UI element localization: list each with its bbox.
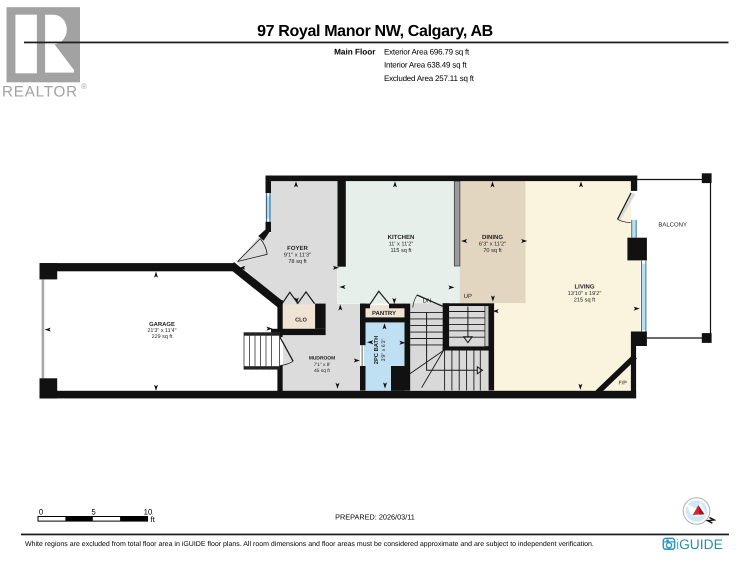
svg-text:MUDROOM: MUDROOM [309,355,335,361]
svg-text:3'9" x 6'3": 3'9" x 6'3" [381,339,387,362]
svg-text:115 sq ft: 115 sq ft [390,247,411,254]
svg-text:6'3" x 11'2": 6'3" x 11'2" [479,241,506,247]
svg-text:BALCONY: BALCONY [658,221,687,228]
svg-text:Exterior Area 696.79 sq ft: Exterior Area 696.79 sq ft [384,47,470,56]
svg-text:KITCHEN: KITCHEN [388,234,415,241]
svg-text:70 sq ft: 70 sq ft [483,247,502,254]
svg-text:Excluded Area 257.11 sq ft: Excluded Area 257.11 sq ft [384,74,475,83]
svg-text:0: 0 [39,508,44,517]
svg-text:45 sq ft: 45 sq ft [314,368,330,374]
svg-text:F/P: F/P [619,380,628,386]
svg-text:iGUIDE: iGUIDE [676,537,723,552]
svg-text:7'1" x 8': 7'1" x 8' [314,362,331,368]
svg-text:PANTRY: PANTRY [372,310,396,317]
svg-text:DN: DN [423,297,432,304]
svg-text:21'3" x 11'4": 21'3" x 11'4" [147,328,176,334]
svg-text:2PC BATH: 2PC BATH [373,336,380,365]
svg-text:GARAGE: GARAGE [149,321,175,328]
svg-text:5: 5 [91,508,96,517]
svg-text:215 sq ft: 215 sq ft [574,296,596,303]
svg-text:UP: UP [464,293,472,300]
svg-text:13'10" x 19'2": 13'10" x 19'2" [568,291,602,297]
svg-text:®: ® [81,82,87,91]
svg-text:Main Floor: Main Floor [334,47,376,56]
svg-text:White regions are excluded fro: White regions are excluded from total fl… [25,540,594,548]
svg-text:229 sq ft: 229 sq ft [152,334,173,340]
svg-text:Interior Area 638.49 sq ft: Interior Area 638.49 sq ft [384,61,467,70]
svg-text:PREPARED: 2026/03/11: PREPARED: 2026/03/11 [335,513,415,522]
svg-text:REALTOR: REALTOR [2,84,78,101]
svg-text:11' x 11'2": 11' x 11'2" [389,241,414,247]
svg-text:97 Royal Manor NW, Calgary, AB: 97 Royal Manor NW, Calgary, AB [257,23,493,40]
svg-text:78 sq ft: 78 sq ft [288,258,307,265]
svg-text:CLO: CLO [295,317,307,323]
svg-text:9'1" x 11'3": 9'1" x 11'3" [284,253,311,259]
svg-text:LIVING: LIVING [574,284,594,291]
svg-text:DINING: DINING [482,234,503,241]
svg-text:FOYER: FOYER [287,245,308,252]
